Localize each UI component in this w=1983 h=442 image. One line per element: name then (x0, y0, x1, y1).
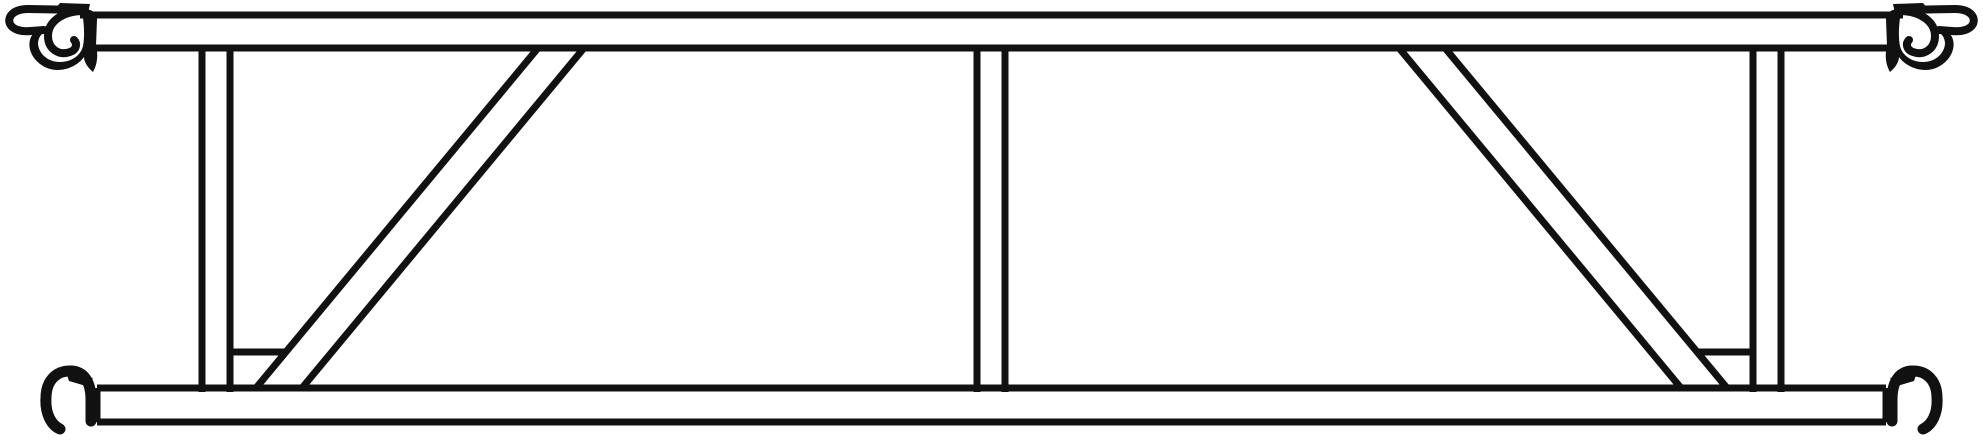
truss-girder-drawing (0, 0, 1983, 442)
wedge-hook-bottom-left (46, 371, 93, 429)
vertical-post-right (1753, 45, 1781, 392)
vertical-post-center (977, 45, 1005, 392)
diagonal-brace-left (256, 48, 584, 388)
bottom-ledger-tube (97, 388, 1886, 422)
wedge-hook-top-right (1886, 3, 1974, 72)
top-ledger-tube (80, 15, 1903, 48)
diagonal-brace-right (1399, 48, 1727, 388)
wedge-hook-top-left (9, 3, 97, 72)
wedge-hook-bottom-right (1890, 371, 1937, 429)
vertical-post-left (202, 45, 230, 392)
scaffold-truss-drawing-page (0, 0, 1983, 442)
